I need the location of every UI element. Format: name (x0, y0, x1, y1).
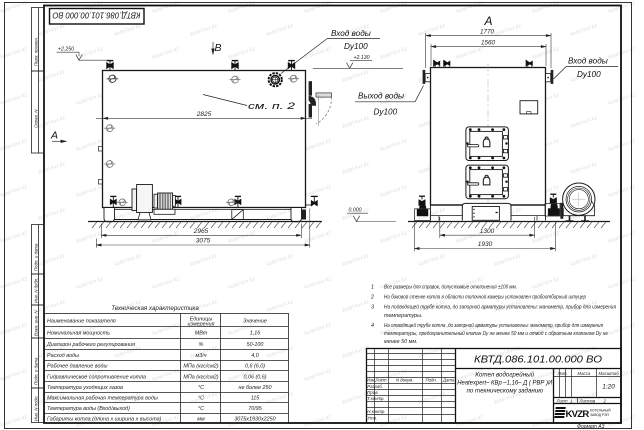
svg-text:0,06 (0,6): 0,06 (0,6) (243, 375, 266, 381)
svg-text:°С: °С (198, 406, 204, 412)
svg-text:м3/ч: м3/ч (196, 353, 207, 359)
svg-text:2965: 2965 (193, 228, 209, 235)
svg-text:Н.контр.: Н.контр. (367, 409, 385, 414)
svg-text:50-100: 50-100 (247, 342, 264, 348)
svg-text:1:20: 1:20 (602, 384, 615, 391)
svg-text:Вход воды: Вход воды (568, 57, 608, 66)
svg-text:A: A (484, 14, 493, 28)
svg-text:0,6 (6,0): 0,6 (6,0) (245, 364, 265, 370)
svg-text:1930: 1930 (478, 241, 493, 248)
svg-text:Масса: Масса (578, 371, 591, 376)
svg-text:Диапазон рабочего регулировани: Диапазон рабочего регулирования (46, 342, 135, 348)
svg-text:по техническому заданию: по техническому заданию (466, 388, 543, 395)
svg-text:3075: 3075 (196, 238, 211, 245)
svg-text:Dy100: Dy100 (344, 42, 368, 51)
svg-text:2825: 2825 (196, 111, 212, 118)
svg-text:Выход воды: Выход воды (358, 92, 404, 101)
svg-text:Температура воды (Вход/выход): Температура воды (Вход/выход) (47, 406, 130, 412)
svg-text:Лист: Лист (556, 398, 568, 403)
svg-text:Разраб.: Разраб. (367, 384, 383, 389)
svg-text:A: A (50, 130, 58, 142)
svg-text:Техническая характеристика: Техническая характеристика (111, 305, 199, 312)
svg-text:Расход воды: Расход воды (47, 353, 79, 359)
svg-text:Лист: Лист (375, 378, 387, 383)
svg-text:°С: °С (198, 385, 204, 391)
svg-text:Значение: Значение (243, 319, 267, 325)
svg-text:3: 3 (371, 305, 374, 311)
svg-text:1560: 1560 (481, 39, 496, 46)
svg-text:см. п. 2: см. п. 2 (248, 101, 295, 111)
svg-text:Подп.: Подп. (426, 378, 437, 383)
svg-text:Инв. N подл.: Инв. N подл. (34, 395, 39, 421)
svg-text:КОТЕЛЬНЫЙ: КОТЕЛЬНЫЙ (590, 409, 611, 413)
svg-text:1770: 1770 (480, 28, 495, 35)
svg-text:3075х1930х2250: 3075х1930х2250 (234, 417, 275, 423)
svg-text:Габариты котла (длина х ширина: Габариты котла (длина х ширина х высота) (47, 417, 162, 423)
svg-text:B: B (215, 42, 222, 54)
svg-text:Подп. и дата: Подп. и дата (34, 243, 39, 271)
svg-text:Гидравлическое сопротивление к: Гидравлическое сопротивление котла (47, 375, 146, 381)
svg-text:Инв. N дубл.: Инв. N дубл. (34, 278, 39, 303)
svg-text:Вход воды: Вход воды (331, 29, 371, 38)
svg-text:температуры, предохранительный: температуры, предохранительный клапан Dу… (384, 330, 608, 337)
svg-text:°С: °С (198, 396, 204, 402)
svg-text:Лит.: Лит. (557, 371, 568, 376)
svg-text:Dy100: Dy100 (374, 108, 398, 117)
svg-text:70/95: 70/95 (248, 406, 262, 412)
svg-text:Дата: Дата (442, 378, 455, 383)
svg-text:4,0: 4,0 (251, 353, 259, 359)
svg-text:На подводящей трубе котла, д: На подводящей трубе котла, до запорной а… (384, 304, 616, 311)
svg-text:Перв. примен.: Перв. примен. (34, 37, 39, 66)
svg-text:Пров.: Пров. (367, 390, 378, 395)
svg-text:2: 2 (370, 295, 374, 301)
svg-text:Наименование показателя: Наименование показателя (47, 319, 116, 325)
svg-text:KVZR: KVZR (566, 409, 590, 420)
svg-text:4: 4 (371, 323, 374, 329)
svg-text:температуры.: температуры. (384, 313, 423, 319)
svg-text:измерения: измерения (188, 322, 215, 328)
svg-text:+2.250: +2.250 (58, 47, 74, 53)
svg-text:Масштаб: Масштаб (599, 371, 620, 376)
svg-text:Справ. N: Справ. N (34, 109, 39, 128)
svg-text:N докум.: N докум. (396, 378, 413, 383)
svg-text:КВТД.086.101.00.000 ВО: КВТД.086.101.00.000 ВО (53, 11, 141, 20)
svg-text:менее 50 мм.: менее 50 мм. (384, 339, 418, 345)
svg-text:Листов: Листов (579, 398, 596, 403)
svg-text:Котел водогрейный: Котел водогрейный (475, 372, 534, 379)
svg-text:Рабочее давление воды: Рабочее давление воды (47, 364, 107, 370)
svg-text:МПа (кгс/см2): МПа (кгс/см2) (183, 364, 218, 370)
svg-text:На боковой стенке котла в обла: На боковой стенке котла в области топочн… (384, 294, 586, 301)
svg-text:МПа (кгс/см2): МПа (кгс/см2) (183, 375, 218, 381)
svg-text:0.000: 0.000 (349, 208, 362, 214)
svg-text:Взам. инв. N: Взам. инв. N (34, 310, 39, 336)
svg-text:Формат А3: Формат А3 (577, 424, 605, 430)
svg-text:Температура уходящих газов: Температура уходящих газов (47, 385, 123, 391)
svg-text:1: 1 (371, 285, 374, 291)
svg-text:ЗАВОД РЭП: ЗАВОД РЭП (590, 413, 609, 417)
svg-text:мм: мм (197, 417, 205, 423)
svg-text:Все размеры для справок, допус: Все размеры для справок, допустимые откл… (384, 285, 517, 291)
svg-text:Heatexpert– КВр –1,16– Д ( РВР: Heatexpert– КВр –1,16– Д ( РВР )И (457, 380, 553, 387)
svg-text:Т.контр.: Т.контр. (367, 396, 384, 401)
svg-text:1300: 1300 (480, 228, 495, 235)
svg-text:Максимальная рабочая температу: Максимальная рабочая температура воды (47, 396, 158, 402)
svg-text:Подп. и дата: Подп. и дата (34, 357, 39, 385)
svg-text:1,16: 1,16 (250, 331, 261, 337)
svg-text:+2.130: +2.130 (354, 55, 370, 61)
svg-text:Утв.: Утв. (367, 416, 377, 421)
svg-text:%: % (199, 342, 204, 348)
svg-text:МВт: МВт (195, 331, 208, 337)
svg-text:не более 250: не более 250 (239, 385, 272, 391)
svg-text:Dy100: Dy100 (577, 70, 601, 79)
svg-text:КВТД.086.101.00.000 ВО: КВТД.086.101.00.000 ВО (474, 354, 602, 366)
svg-text:Номинальная мощность: Номинальная мощность (47, 331, 110, 337)
svg-text:115: 115 (251, 396, 261, 402)
svg-text:На отводящей трубе котла ,до з: На отводящей трубе котла ,до запорной ар… (384, 322, 603, 329)
